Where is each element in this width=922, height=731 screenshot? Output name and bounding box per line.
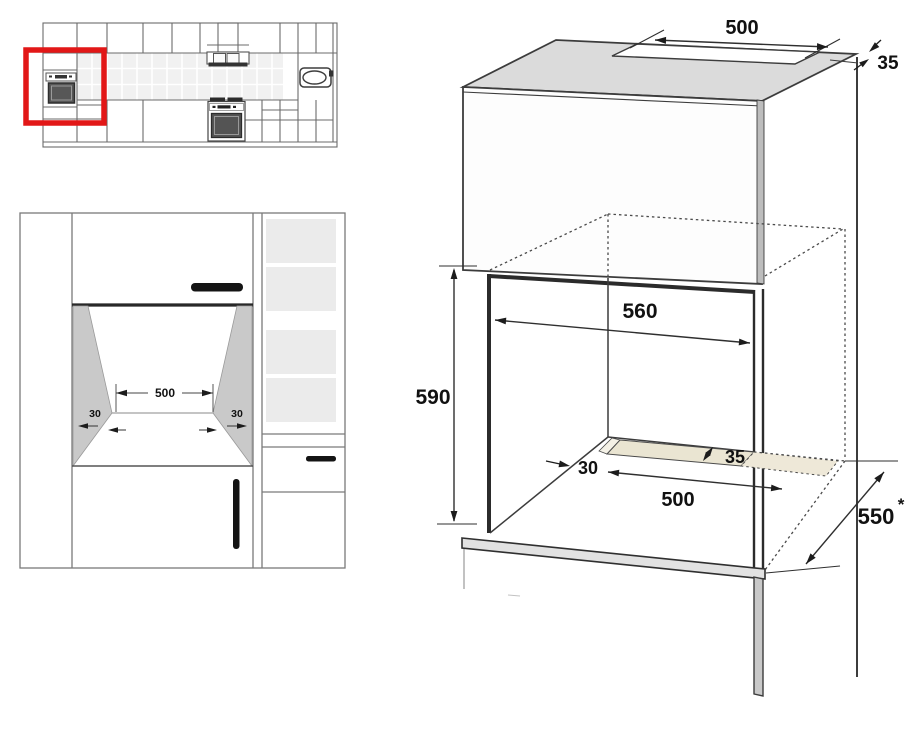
dim-cabinet-depth: 550 * [766, 461, 905, 573]
front-left-clearance-label: 30 [89, 408, 101, 420]
plinth-mark [508, 595, 520, 596]
sink-icon [300, 68, 334, 87]
wall-oven-icon [46, 73, 76, 103]
lower-side-panel-edge [754, 577, 763, 696]
slot-offset-label: 30 [578, 458, 598, 478]
dim-bottom-vent-width: 500 [608, 470, 782, 511]
niche-right-wall [213, 306, 252, 466]
range-cooker-icon [208, 98, 245, 142]
lower-door-handle [233, 479, 240, 549]
upper-door-handle [191, 283, 243, 292]
dim-niche-width: 560 [495, 300, 750, 345]
niche-width-label: 560 [622, 300, 657, 323]
rear-gap-label: 35 [877, 53, 899, 74]
front-opening-width-label: 500 [155, 386, 175, 400]
top-vent-width-label: 500 [725, 17, 758, 39]
oven-installation-diagram: 500 30 30 [0, 0, 922, 731]
cabinet-depth-note: * [898, 495, 905, 514]
bottom-vent-depth-label: 35 [725, 447, 745, 467]
dim-niche-height: 590 [415, 266, 477, 524]
cabinet-depth-label: 550 [858, 504, 895, 529]
diagram-canvas: 500 30 30 [0, 0, 922, 731]
shelf-column [262, 219, 345, 492]
drawer-handle [306, 456, 336, 462]
dim-front-opening-width: 500 [116, 384, 213, 412]
bottom-shelf-edge [462, 538, 765, 579]
upper-cabinet-side-edge [757, 100, 764, 284]
niche-left-wall [73, 306, 112, 466]
cabinet-front-view-panel: 500 30 30 [20, 213, 345, 568]
niche-height-label: 590 [415, 386, 450, 409]
isometric-view-panel: 500 35 560 590 [415, 17, 904, 696]
tile-backsplash [77, 53, 283, 100]
bottom-vent-width-label: 500 [661, 489, 694, 511]
dim-rear-gap: 35 [854, 40, 899, 74]
upper-cabinet-front [463, 87, 762, 284]
kitchen-overview-panel [26, 23, 337, 147]
bottom-vent-slot [599, 438, 838, 476]
dim-slot-offset: 30 [546, 458, 598, 478]
front-right-clearance-label: 30 [231, 408, 243, 420]
oven-housing-column: 500 30 30 [72, 283, 253, 549]
